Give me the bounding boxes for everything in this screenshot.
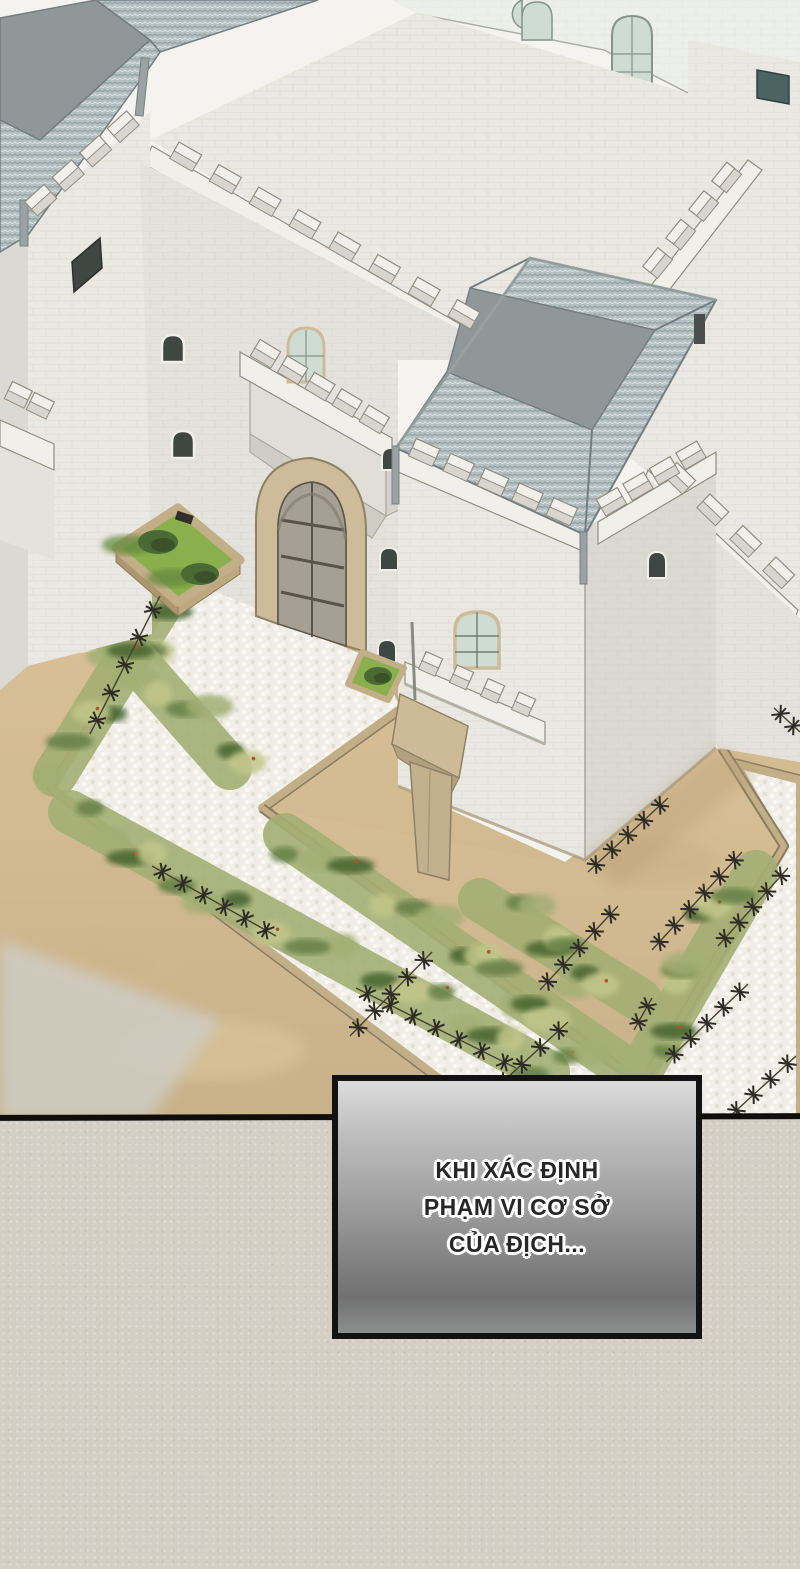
- flower-dot: [487, 950, 491, 954]
- small-window-icon: [380, 548, 398, 570]
- caption-text-line: KHI XÁC ĐỊNH: [435, 1152, 598, 1189]
- flower-dot: [355, 860, 359, 864]
- main-gate: [256, 458, 366, 652]
- castle-illustration: [0, 0, 800, 1118]
- castle-scene-panel: [0, 0, 800, 1118]
- roof-post: [20, 200, 28, 246]
- roof-post: [580, 532, 587, 584]
- flower-dot: [276, 927, 280, 931]
- small-window-icon: [172, 431, 194, 458]
- small-window-icon: [648, 552, 666, 578]
- flower-dot: [604, 979, 608, 983]
- flower-dot: [252, 757, 256, 761]
- caption-text-line: CỦA ĐỊCH...: [449, 1226, 585, 1263]
- left-small-tower: [0, 420, 54, 560]
- dark-window-icon: [757, 70, 789, 104]
- caption-text-line: PHẠM VI CƠ SỞ: [424, 1189, 610, 1226]
- flower-dot: [678, 1025, 682, 1029]
- flower-dot: [446, 986, 450, 990]
- flower-dot: [96, 707, 100, 711]
- flower-dot: [134, 852, 138, 856]
- caption-box: KHI XÁC ĐỊNH PHẠM VI CƠ SỞ CỦA ĐỊCH...: [332, 1075, 702, 1339]
- small-window-icon: [162, 335, 184, 362]
- roof-post: [392, 446, 399, 504]
- chimney: [694, 314, 705, 344]
